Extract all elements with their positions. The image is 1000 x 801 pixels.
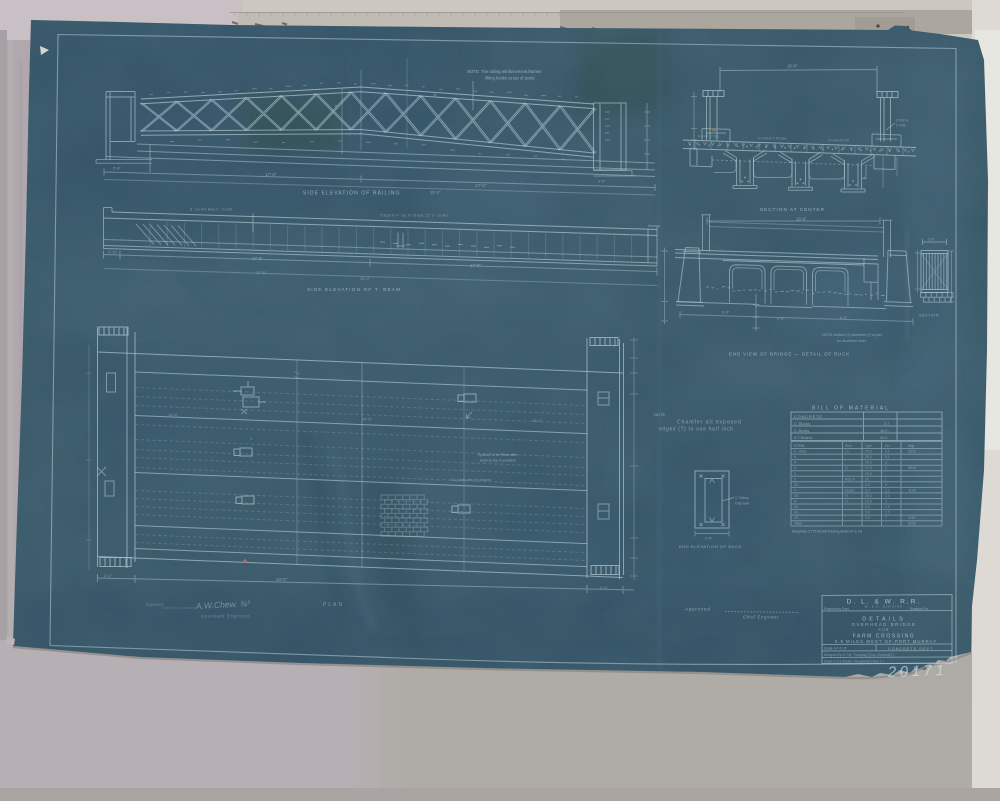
svg-text:for abutment ends: for abutment ends [837, 339, 866, 343]
svg-text:5.0: 5.0 [865, 483, 870, 487]
svg-text:20.0: 20.0 [865, 461, 872, 465]
svg-text:5.4: 5.4 [865, 488, 870, 492]
svg-text:SIDE ELEVATION OF RAILING: SIDE ELEVATION OF RAILING [303, 191, 401, 197]
svg-text:Scale ⅜"=1'-0": Scale ⅜"=1'-0" [824, 647, 848, 651]
svg-text:2'-0": 2'-0" [600, 585, 609, 590]
svg-text:FOR: FOR [879, 628, 890, 632]
svg-text:Size: Size [845, 444, 852, 448]
svg-text:NOTE: Arches (?) sketched (?): NOTE: Arches (?) sketched (?) of pier [822, 333, 883, 337]
svg-text:6.1: 6.1 [885, 450, 890, 454]
svg-text:⅝: ⅝ [845, 500, 848, 504]
svg-text:2'-6": 2'-6" [705, 537, 713, 541]
svg-text:SECTION: SECTION [919, 314, 939, 318]
svg-text:5'-6": 5'-6" [113, 166, 122, 171]
svg-text:2.2: 2.2 [885, 488, 890, 492]
svg-text:40 -: 40 - [794, 505, 801, 509]
svg-text:Total: Total [794, 522, 802, 526]
svg-text:3: 3 [885, 500, 887, 504]
svg-text:SECTION AT CENTER: SECTION AT CENTER [760, 207, 825, 212]
svg-text:14'-6": 14'-6" [168, 412, 179, 417]
svg-text:14'-6": 14'-6" [362, 417, 373, 422]
svg-text:SIDE ELEVATION OF T. BEAM: SIDE ELEVATION OF T. BEAM [307, 287, 401, 293]
svg-text:2.5: 2.5 [885, 511, 890, 515]
svg-text:beams are in position: beams are in position [480, 459, 516, 463]
svg-text:OVERHEAD BRIDGE: OVERHEAD BRIDGE [852, 622, 917, 627]
svg-text:2'-0": 2'-0" [928, 238, 936, 242]
svg-text:17'-0": 17'-0" [252, 256, 263, 261]
svg-text:29.5: 29.5 [865, 494, 872, 498]
svg-text:41 -: 41 - [794, 511, 801, 515]
svg-text:5: 5 [794, 477, 796, 481]
svg-text:8 - Bars: 8 - Bars [794, 450, 807, 454]
svg-text:17'-0": 17'-0" [470, 263, 481, 268]
svg-text:Approved: Approved [685, 607, 711, 612]
svg-text:1212: 1212 [908, 450, 916, 454]
svg-text:16'-0": 16'-0" [787, 64, 798, 69]
svg-text:Sheet 2 of 3 Sheets • Required: Sheet 2 of 3 Sheets • Required(?) May 2.… [824, 659, 884, 663]
svg-text:Designed By D.T.M. Thursday(?): Designed By D.T.M. Thursday(?)Con Checke… [824, 653, 893, 657]
svg-text:Requires 2775 Road Paving Bolt: Requires 2775 Road Paving Bolts 8×3-16 [792, 530, 862, 534]
svg-text:17'-6": 17'-6" [256, 270, 267, 275]
svg-text:C. Bucks: C. Bucks [794, 429, 809, 433]
svg-text:NOTE: The railing reinforceme: NOTE: The railing reinforcement frames [467, 69, 541, 74]
svg-text:8'-3": 8'-3" [840, 316, 848, 320]
svg-text:8'-3": 8'-3" [722, 311, 730, 315]
svg-text:1" Weep: 1" Weep [735, 496, 749, 500]
svg-text:END VIEW OF BRIDGE — DETAIL OF: END VIEW OF BRIDGE — DETAIL OF BUCK [729, 352, 850, 357]
svg-text:PLAN: PLAN [323, 602, 344, 608]
svg-text:5 St'ps 6" 4 - Sp. 9" 16 Spa: 5 St'ps 6" 4 - Sp. 9" 16 Spa. 12" 5 - 1¼… [380, 214, 447, 218]
svg-text:16 -: 16 - [794, 494, 801, 498]
svg-text:2.4: 2.4 [885, 494, 890, 498]
svg-text:8-½ Rd 12 ctrs: 8-½ Rd 12 ctrs [698, 135, 719, 139]
svg-text:BILL OF MATERIAL: BILL OF MATERIAL [812, 406, 890, 412]
svg-text:NOTE:: NOTE: [654, 412, 666, 417]
svg-text:3: 3 [885, 461, 887, 465]
svg-text:STEEL: STEEL [794, 444, 805, 448]
svg-text:Chamfer all exposed: Chamfer all exposed [677, 420, 742, 426]
svg-text:5-¾ Rd 4½ Rd: 5-¾ Rd 4½ Rd [828, 139, 849, 143]
svg-text:C. Blocks: C. Blocks [794, 422, 810, 426]
svg-text:Drip hole: Drip hole [735, 502, 749, 506]
svg-text:5.6: 5.6 [865, 511, 870, 515]
svg-text:1¼: 1¼ [845, 450, 850, 454]
svg-text:2: 2 [885, 466, 887, 470]
svg-text:34'-0": 34'-0" [276, 577, 288, 582]
svg-text:16'-6": 16'-6" [796, 217, 807, 222]
svg-text:Lgth: Lgth [865, 444, 872, 448]
svg-text:8 - 1¼ Rd. Bars 2 - 1¼ Rd: 8 - 1¼ Rd. Bars 2 - 1¼ Rd [190, 208, 232, 212]
svg-text:X: X [250, 436, 253, 441]
svg-text:20.5: 20.5 [865, 500, 872, 504]
svg-text:Assistant Engineer: Assistant Engineer [201, 614, 250, 619]
svg-text:21.5: 21.5 [865, 466, 872, 470]
svg-text:edges (?) to one half inch: edges (?) to one half inch [659, 427, 734, 433]
svg-text:4'-0": 4'-0" [598, 180, 606, 184]
svg-text:5-T Beams: 5-T Beams [794, 436, 813, 440]
svg-text:END ELEVATION OF BUCK: END ELEVATION OF BUCK [679, 544, 742, 549]
svg-text:17'-6": 17'-6" [475, 183, 487, 188]
svg-text:35'-0": 35'-0" [430, 190, 441, 195]
svg-text:⅜: ⅜ [845, 466, 848, 470]
svg-text:Engineering Dept.: Engineering Dept. [824, 607, 850, 611]
svg-text:M. & E. DIVISION: M. & E. DIVISION [865, 604, 903, 608]
svg-text:28.0: 28.0 [865, 455, 872, 459]
svg-text:Rds ⅛: Rds ⅛ [845, 477, 855, 481]
svg-text:2013: 2013 [908, 466, 916, 470]
svg-text:20 -: 20 - [794, 483, 801, 487]
svg-text:0.9 MILES WEST OF PORT MUR: 0.9 MILES WEST OF PORT MURRAY [835, 639, 937, 644]
svg-text:5.1: 5.1 [885, 455, 890, 459]
svg-text:C Rds: C Rds [896, 124, 906, 128]
svg-text:CONCRETE: CONCRETE [794, 414, 823, 419]
svg-text:3'-10": 3'-10" [108, 251, 118, 255]
svg-text:2'-0": 2'-0" [104, 573, 113, 578]
svg-text:26.5: 26.5 [865, 472, 872, 476]
svg-text:25: 25 [865, 477, 869, 481]
svg-text:2 Pcs ℅: 2 Pcs ℅ [896, 119, 908, 123]
svg-text:17'-6": 17'-6" [265, 172, 277, 177]
svg-text:½: ½ [845, 494, 848, 498]
svg-text:4.0: 4.0 [865, 505, 870, 509]
svg-text:32 -: 32 - [794, 516, 801, 520]
svg-text:2-¾ Rd 8-½ Rd bars: 2-¾ Rd 8-½ Rd bars [758, 137, 787, 141]
svg-text:Correct: Correct [146, 602, 164, 607]
svg-text:34'-0": 34'-0" [360, 276, 371, 281]
svg-text:Scranton Pa.: Scranton Pa. [910, 607, 929, 611]
svg-text:20171: 20171 [887, 662, 948, 681]
svg-text:18'-0": 18'-0" [532, 418, 543, 423]
svg-text:CONCRETE DEPT: CONCRETE DEPT [888, 647, 934, 651]
svg-text:Chief Engineer: Chief Engineer [743, 615, 779, 620]
svg-text:1.2: 1.2 [885, 505, 890, 509]
svg-text:5132: 5132 [908, 522, 916, 526]
svg-text:lifting hooks at top of posts: lifting hooks at top of posts [485, 76, 535, 81]
svg-text:Wgt: Wgt [908, 444, 914, 448]
svg-text:1132: 1132 [908, 488, 916, 492]
svg-text:Dr. joints are not shown: Dr. joints are not shown [451, 478, 491, 482]
svg-text:7: 7 [885, 516, 887, 520]
svg-text:10.0 -: 10.0 - [880, 429, 890, 433]
svg-text:Hooks: Hooks [845, 488, 855, 492]
svg-text:25.0 -: 25.0 - [880, 436, 890, 440]
svg-text:2107: 2107 [908, 516, 916, 520]
svg-text:L: L [885, 477, 887, 481]
svg-text:2.7: 2.7 [884, 422, 889, 426]
svg-text:No: No [885, 444, 889, 448]
svg-text:3.8: 3.8 [865, 516, 870, 520]
svg-text:29.0: 29.0 [865, 450, 872, 454]
svg-text:Spaces to be filled after: Spaces to be filled after [478, 453, 518, 457]
svg-text:4'-0": 4'-0" [777, 317, 785, 321]
